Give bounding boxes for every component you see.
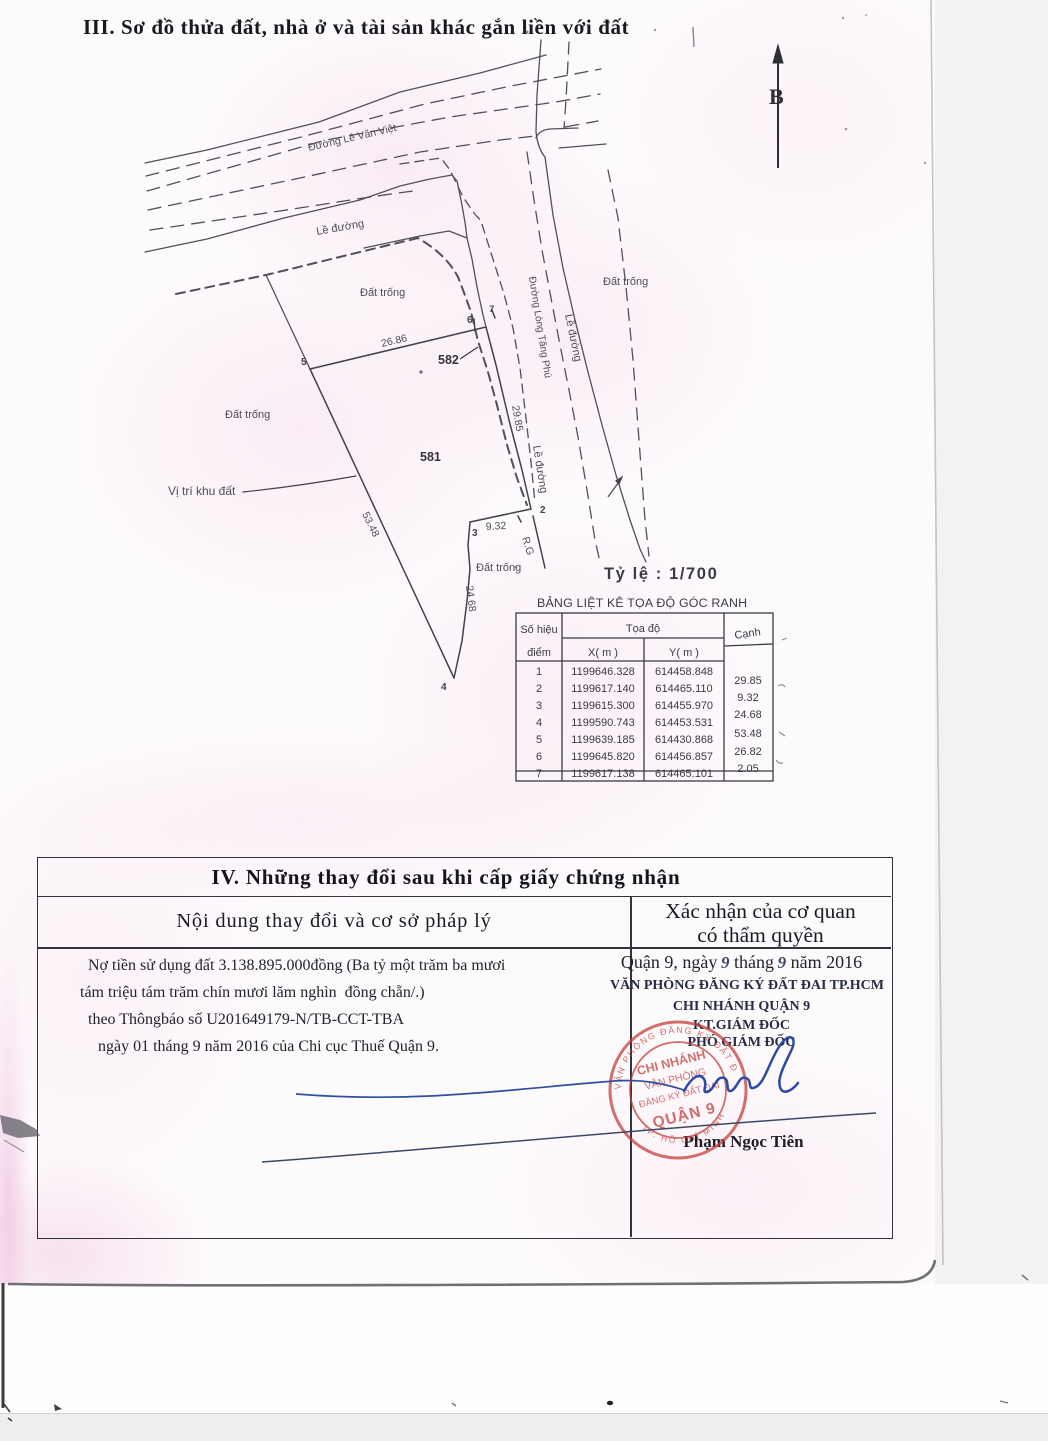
svg-text:53.48: 53.48 — [734, 728, 762, 740]
svg-text:582: 582 — [438, 353, 459, 367]
svg-text:614465.101: 614465.101 — [655, 768, 713, 780]
svg-text:Đất trống: Đất trống — [476, 562, 521, 574]
svg-text:X( m ): X( m ) — [588, 647, 618, 659]
svg-text:614456.857: 614456.857 — [655, 751, 713, 763]
svg-text:1199590.743: 1199590.743 — [571, 717, 634, 729]
svg-text:Lề đường: Lề đường — [530, 445, 549, 495]
svg-text:Đất trống: Đất trống — [225, 409, 270, 421]
svg-text:1199646.328: 1199646.328 — [571, 666, 634, 678]
svg-text:1199615.300: 1199615.300 — [571, 700, 634, 712]
svg-text:R.G: R.G — [519, 535, 536, 556]
svg-text:1: 1 — [536, 666, 542, 678]
svg-text:Y( m ): Y( m ) — [669, 647, 699, 659]
svg-text:1199645.820: 1199645.820 — [571, 751, 634, 763]
svg-text:Lề đường: Lề đường — [562, 313, 584, 363]
svg-text:Đất trống: Đất trống — [360, 287, 405, 299]
svg-text:24 68: 24 68 — [463, 585, 478, 613]
svg-text:4: 4 — [536, 717, 542, 729]
svg-text:2.05: 2.05 — [737, 763, 758, 775]
svg-text:614453.531: 614453.531 — [655, 717, 713, 729]
svg-text:29.85: 29.85 — [734, 675, 762, 687]
svg-text:1199617.138: 1199617.138 — [571, 768, 634, 780]
svg-text:581: 581 — [420, 450, 441, 464]
svg-text:5: 5 — [301, 357, 307, 368]
svg-text:614458.848: 614458.848 — [655, 666, 713, 678]
svg-text:Đường Lê Văn Việt: Đường Lê Văn Việt — [307, 122, 398, 154]
svg-text:7: 7 — [536, 768, 542, 780]
svg-text:26.82: 26.82 — [734, 746, 762, 758]
svg-text:614455.970: 614455.970 — [655, 700, 713, 712]
svg-text:3: 3 — [536, 700, 542, 712]
svg-text:1199639.185: 1199639.185 — [571, 734, 634, 746]
svg-text:6: 6 — [467, 315, 473, 326]
svg-text:614430.868: 614430.868 — [655, 734, 713, 746]
svg-text:Đường Lòng Tăng Phú: Đường Lòng Tăng Phú — [526, 276, 553, 379]
svg-text:5: 5 — [536, 734, 542, 746]
svg-text:B: B — [769, 84, 784, 109]
svg-text:Tọa độ: Tọa độ — [626, 623, 660, 635]
svg-text:6: 6 — [536, 751, 542, 763]
svg-text:Cạnh: Cạnh — [734, 626, 762, 642]
svg-text:24.68: 24.68 — [734, 709, 762, 721]
svg-text:614465.110: 614465.110 — [655, 683, 712, 695]
svg-text:7: 7 — [489, 304, 494, 315]
svg-text:Lề đường: Lề đường — [315, 218, 365, 238]
svg-text:điểm: điểm — [527, 647, 551, 659]
svg-text:2: 2 — [536, 683, 542, 695]
svg-text:Vị trí khu đất: Vị trí khu đất — [168, 484, 236, 498]
svg-text:1199617.140: 1199617.140 — [571, 683, 634, 695]
svg-text:Tỷ lệ : 1/700: Tỷ lệ : 1/700 — [604, 565, 718, 583]
svg-text:Số hiệu: Số hiệu — [520, 624, 557, 636]
svg-text:9.32: 9.32 — [737, 692, 758, 704]
svg-text:4: 4 — [441, 682, 447, 693]
svg-text:9.32: 9.32 — [486, 520, 507, 533]
svg-text:BẢNG LIỆT KÊ TỌA ĐỘ GÓC RANH: BẢNG LIỆT KÊ TỌA ĐỘ GÓC RANH — [537, 595, 747, 610]
svg-text:2: 2 — [540, 505, 546, 516]
svg-text:Đất trống: Đất trống — [603, 276, 648, 288]
svg-text:3: 3 — [472, 528, 478, 539]
